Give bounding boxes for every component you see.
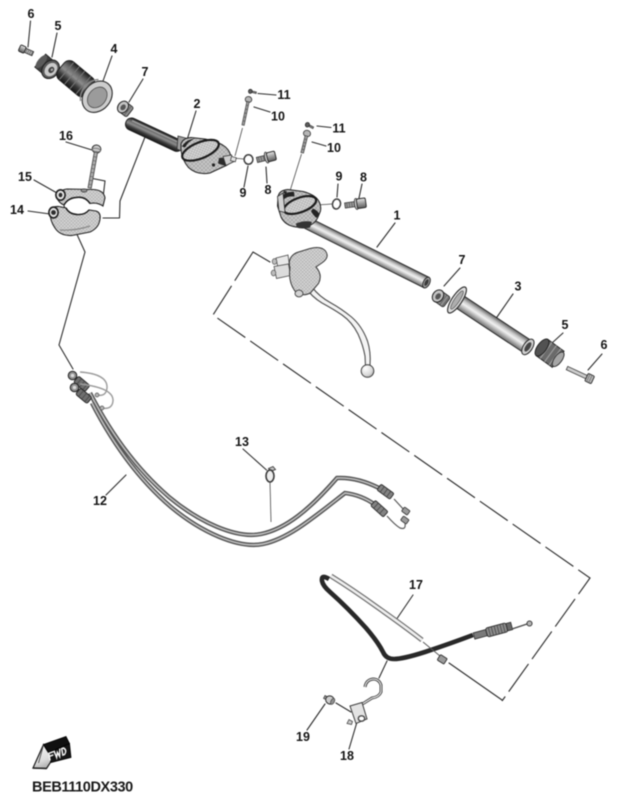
svg-text:14: 14: [10, 203, 24, 217]
svg-text:18: 18: [340, 749, 354, 763]
svg-text:4: 4: [111, 42, 118, 56]
svg-text:7: 7: [142, 65, 149, 79]
svg-text:5: 5: [55, 19, 62, 33]
svg-text:8: 8: [360, 171, 367, 185]
svg-text:16: 16: [59, 129, 73, 143]
svg-text:6: 6: [601, 338, 608, 352]
svg-text:5: 5: [562, 318, 569, 332]
svg-text:6: 6: [28, 7, 35, 21]
svg-text:11: 11: [277, 88, 290, 102]
svg-text:8: 8: [265, 183, 272, 197]
svg-text:11: 11: [332, 122, 345, 136]
svg-text:13: 13: [235, 435, 249, 449]
svg-text:9: 9: [240, 186, 247, 200]
svg-text:12: 12: [93, 494, 107, 508]
svg-text:10: 10: [271, 110, 285, 124]
svg-text:7: 7: [459, 253, 466, 267]
svg-text:10: 10: [327, 141, 341, 155]
svg-text:15: 15: [18, 170, 32, 184]
svg-text:2: 2: [194, 97, 201, 111]
svg-text:3: 3: [515, 280, 522, 294]
svg-text:BEB1110DX330: BEB1110DX330: [32, 780, 133, 796]
svg-text:17: 17: [409, 578, 423, 592]
svg-text:1: 1: [394, 209, 401, 223]
svg-text:19: 19: [296, 730, 310, 744]
svg-text:9: 9: [336, 170, 343, 184]
